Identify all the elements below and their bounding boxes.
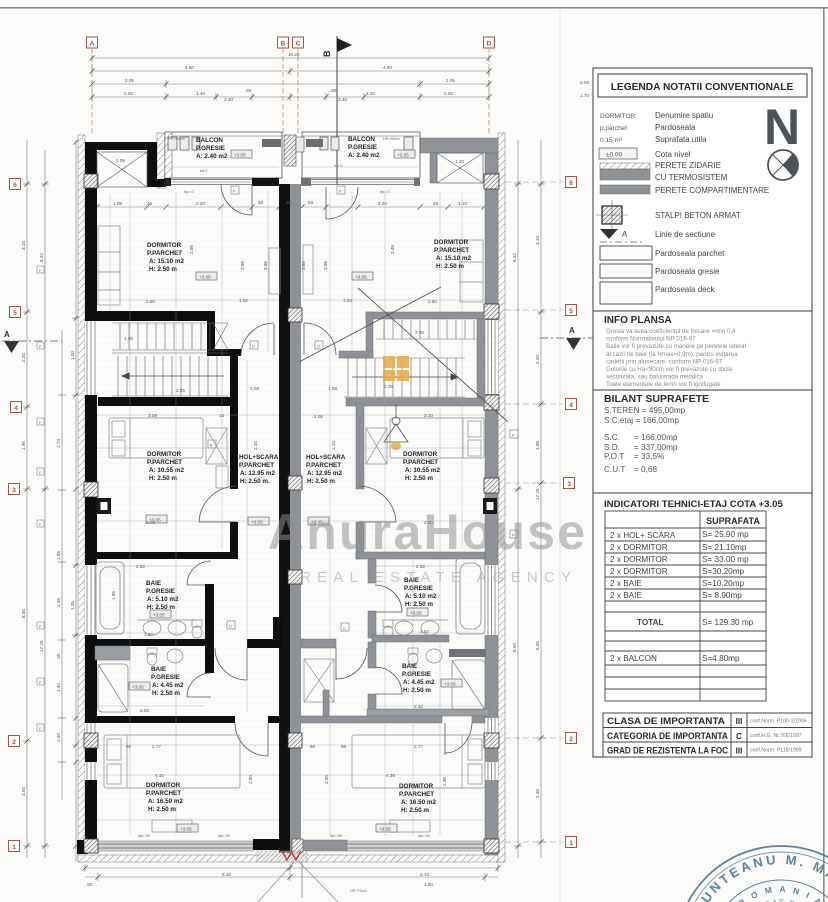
svg-text:DORMITOR: DORMITOR [147,242,182,249]
svg-text:1.70: 1.70 [580,93,589,98]
svg-text:hp= 90: hp= 90 [418,834,430,838]
svg-text:N: N [764,99,800,155]
svg-text:2 x BALCON: 2 x BALCON [610,654,657,663]
svg-text:PERETE ZIDARIE: PERETE ZIDARIE [655,161,721,170]
svg-text:1.05: 1.05 [56,551,61,560]
svg-text:P.GRESIE: P.GRESIE [402,671,431,678]
svg-text:6.32: 6.32 [39,253,44,262]
svg-text:P.GRESIE: P.GRESIE [348,144,377,151]
svg-text:DORMITOR: DORMITOR [399,783,434,790]
svg-text:2.20: 2.20 [21,353,26,362]
svg-text:1.95: 1.95 [21,441,26,450]
svg-text:1.40: 1.40 [56,733,61,742]
svg-text:1: 1 [569,840,573,847]
svg-text:3.85: 3.85 [301,261,306,270]
svg-text:2.40: 2.40 [224,97,233,102]
svg-text:S.D.: S.D. [604,443,620,452]
svg-text:Denumire spatiu: Denumire spatiu [655,111,713,120]
svg-text:Pardoseala parchet: Pardoseala parchet [655,249,725,258]
svg-text:2.45: 2.45 [390,245,395,254]
svg-text:CLASA DE IMPORTANTA: CLASA DE IMPORTANTA [607,716,725,726]
svg-text:A: A [90,41,95,48]
svg-text:58: 58 [308,200,314,205]
svg-text:2 x DORMITOR: 2 x DORMITOR [610,555,668,564]
svg-text:58: 58 [258,200,264,205]
svg-text:1.35: 1.35 [70,601,75,610]
svg-text:S=4.80mp: S=4.80mp [702,654,740,663]
svg-text:Pardoseala gresie: Pardoseala gresie [655,267,720,276]
svg-text:BILANT SUPRAFETE: BILANT SUPRAFETE [604,393,709,405]
svg-text:caderii prin alunecare, confor: caderii prin alunecare, conform NP 016-9… [606,358,723,365]
svg-text:HP=90cm: HP=90cm [168,137,185,141]
svg-text:2.80: 2.80 [428,299,437,304]
svg-text:3: 3 [12,487,16,494]
svg-text:H: 2.50 m: H: 2.50 m [307,478,335,485]
svg-text:1.95: 1.95 [535,441,540,450]
svg-text:P.GRESIE: P.GRESIE [151,674,180,681]
svg-text:B: B [281,41,286,48]
svg-text:hp= 90: hp= 90 [218,834,230,838]
svg-text:A: 12.95 m2: A: 12.95 m2 [240,470,275,477]
svg-text:A: 15.10 m2: A: 15.10 m2 [436,255,471,262]
svg-text:+3.05: +3.05 [444,682,456,687]
svg-text:HP=70cm: HP=70cm [350,889,367,893]
svg-text:S=30.20mp: S=30.20mp [702,567,745,576]
svg-text:III: III [736,717,743,726]
svg-text:2 x BAIE: 2 x BAIE [610,591,642,600]
svg-text:INDICATORI TEHNICI-ETAJ COTA +: INDICATORI TEHNICI-ETAJ COTA +3.05 [604,499,784,510]
svg-text:6.00: 6.00 [512,643,517,652]
svg-text:2.40: 2.40 [338,97,347,102]
svg-text:.50: .50 [86,882,93,887]
svg-text:3.10: 3.10 [21,241,26,250]
svg-text:GRAD DE REZISTENTA LA FOC: GRAD DE REZISTENTA LA FOC [607,746,728,756]
svg-text:Toate elementele de lemn vor f: Toate elementele de lemn vor fi ignifuga… [606,381,721,388]
svg-text:1.08: 1.08 [250,386,259,391]
svg-text:S= 33.00 mp: S= 33.00 mp [702,555,749,564]
svg-text:98: 98 [286,200,292,205]
svg-text:1.74: 1.74 [56,439,61,448]
svg-text:17.25: 17.25 [535,488,540,500]
svg-text:A: A [569,326,575,335]
svg-text:C: C [296,41,301,48]
svg-text:S.C.: S.C. [604,433,620,442]
svg-text:p.parchet: p.parchet [600,125,627,132]
svg-text:= 33,5%: = 33,5% [634,452,664,461]
svg-text:3.85: 3.85 [323,261,328,270]
svg-text:TOTAL: TOTAL [637,618,664,627]
svg-text:±0.00: ±0.00 [606,152,623,159]
svg-text:2.42: 2.42 [414,704,423,709]
svg-text:HOL+SCARA: HOL+SCARA [306,454,346,461]
svg-text:1.40: 1.40 [366,91,375,96]
svg-text:1.35: 1.35 [56,598,61,607]
svg-text:P.O.T: P.O.T [604,452,624,461]
svg-text:BAIE: BAIE [146,580,161,587]
svg-text:1.40: 1.40 [56,683,61,692]
svg-text:Pardoseala: Pardoseala [655,123,696,132]
svg-text:S= 129.30 mp: S= 129.30 mp [702,618,754,627]
svg-text:H: 2.50 m.: H: 2.50 m. [240,478,270,485]
svg-text:10.28: 10.28 [288,52,300,57]
svg-text:SUPRAFATA: SUPRAFATA [706,516,760,526]
svg-text:Cota nivel: Cota nivel [655,150,691,159]
svg-text:A: 10.55 m2: A: 10.55 m2 [149,467,184,474]
svg-text:S=10.20mp: S=10.20mp [702,579,745,588]
svg-text:LEGENDA NOTATII CONVENTIONALE: LEGENDA NOTATII CONVENTIONALE [611,82,794,93]
svg-text:U: U [252,345,255,349]
svg-text:U: U [317,345,320,349]
svg-text:17.25: 17.25 [39,640,44,652]
svg-text:A: 2.40 m2: A: 2.40 m2 [348,152,380,159]
svg-text:4: 4 [14,405,18,412]
svg-text:Golurile cu Ha<90cm vor fi pre: Golurile cu Ha<90cm vor fi prevazute cu … [606,366,733,373]
svg-text:6: 6 [569,180,573,187]
svg-text:2.06: 2.06 [580,80,589,85]
svg-text:2.05: 2.05 [125,78,134,83]
svg-text:C.U.T: C.U.T [604,465,625,474]
svg-text:BALCON: BALCON [348,136,375,143]
svg-text:conf.Norm. P118/1999: conf.Norm. P118/1999 [750,748,802,754]
svg-text:H: 2.50 m: H: 2.50 m [148,806,176,813]
svg-text:3.10: 3.10 [535,236,540,245]
svg-text:2 x DORMITOR: 2 x DORMITOR [610,543,668,552]
svg-text:AnuraHouse: AnuraHouse [268,504,587,560]
svg-text:2.05: 2.05 [124,91,133,96]
svg-text:.80: .80 [245,88,252,93]
svg-text:1.50: 1.50 [424,882,433,887]
svg-text:+3.05: +3.05 [397,153,409,158]
svg-text:securizata, sau balustrada met: securizata, sau balustrada metalica [606,374,704,381]
svg-text:conform Normativului NP 016-97: conform Normativului NP 016-97 [606,336,696,343]
svg-text:6.00: 6.00 [21,609,26,618]
svg-text:H: 2.50 m: H: 2.50 m [149,266,177,273]
svg-text:S.TEREN = 495,00mp: S.TEREN = 495,00mp [604,406,686,415]
svg-text:S= 25.90 mp: S= 25.90 mp [702,530,749,539]
svg-text:2.05: 2.05 [446,78,455,83]
svg-text:1.95: 1.95 [111,591,116,600]
svg-text:1: 1 [12,844,16,851]
svg-text:A: 2.40 m2: A: 2.40 m2 [196,153,228,160]
svg-text:PERETE COMPARTIMENTARE: PERETE COMPARTIMENTARE [655,186,769,195]
svg-text:2 x DORMITOR: 2 x DORMITOR [610,567,668,576]
svg-text:hp= 0: hp= 0 [184,190,194,194]
svg-text:1.10: 1.10 [455,159,464,164]
svg-text:1.52: 1.52 [239,298,248,303]
svg-text:2: 2 [569,736,573,743]
svg-text:H: 2.50 m: H: 2.50 m [436,263,464,270]
svg-text:2.79: 2.79 [146,520,155,525]
svg-text:2.38: 2.38 [442,777,447,786]
svg-text:1.08: 1.08 [328,386,337,391]
svg-text:A: A [622,230,628,239]
svg-text:5: 5 [569,308,573,315]
svg-text:HOL+SCARA: HOL+SCARA [239,454,279,461]
svg-text:6.48: 6.48 [222,872,231,877]
svg-text:0.15 m²: 0.15 m² [600,137,623,144]
svg-text:4: 4 [569,402,573,409]
svg-text:5: 5 [13,310,17,317]
svg-text:3: 3 [567,481,571,488]
svg-text:2.73: 2.73 [420,872,429,877]
svg-text:B: B [322,50,332,57]
svg-text:P.PARCHET: P.PARCHET [147,250,182,257]
svg-text:bd 0: bd 0 [200,169,207,173]
svg-text:2.50: 2.50 [21,787,26,796]
svg-text:Baile vor fi prevazute cu mane: Baile vor fi prevazute cu manere pe pere… [606,343,746,350]
svg-text:A: 5.10 m2: A: 5.10 m2 [147,596,179,603]
svg-text:S= 21.10mp: S= 21.10mp [702,543,747,552]
svg-text:Gresia va avea coeficientul de: Gresia va avea coeficientul de frecare =… [606,328,736,335]
svg-text:6.32: 6.32 [512,253,517,262]
svg-text:1.00: 1.00 [70,351,75,360]
svg-text:CU TERMOSISTEM: CU TERMOSISTEM [655,173,728,182]
svg-text:= 0,68: = 0,68 [634,465,657,474]
svg-text:2.95: 2.95 [189,245,194,254]
svg-text:Linie de sectiune: Linie de sectiune [655,230,716,239]
svg-text:P.PARCHET: P.PARCHET [399,791,434,798]
svg-text:Pardoseala deck: Pardoseala deck [655,285,716,294]
svg-text:2.20: 2.20 [535,355,540,364]
svg-text:2.00: 2.00 [324,775,329,784]
svg-text:III: III [736,747,743,756]
svg-text:3.85: 3.85 [240,261,245,270]
svg-text:HP=90cm: HP=90cm [383,137,400,141]
svg-text:2.80: 2.80 [146,299,155,304]
svg-text:h=l 0: h=l 0 [334,164,342,168]
svg-text:2.10: 2.10 [253,441,258,450]
svg-text:DORMITOR: DORMITOR [434,239,469,246]
svg-text:4.32: 4.32 [155,773,164,778]
svg-text:1.09: 1.09 [116,158,125,163]
svg-text:S= 8.90mp: S= 8.90mp [702,591,742,600]
svg-text:4.60: 4.60 [383,65,392,70]
svg-text:+3.05: +3.05 [234,153,246,158]
svg-text:.45: .45 [56,653,61,660]
svg-text:BAIE: BAIE [402,663,417,670]
svg-text:STALPI BETON ARMAT: STALPI BETON ARMAT [655,211,741,220]
svg-text:A: 5.10 m2: A: 5.10 m2 [405,593,437,600]
svg-text:2.05: 2.05 [444,91,453,96]
svg-text:1.40: 1.40 [196,91,205,96]
svg-text:2: 2 [12,739,16,746]
svg-text:= 166,00mp: = 166,00mp [634,433,678,442]
svg-text:DORMITOR: DORMITOR [146,782,181,789]
svg-text:S.C.etaj = 166,00mp: S.C.etaj = 166,00mp [604,416,679,425]
svg-text:2.25: 2.25 [176,388,185,393]
svg-text:conf.H.G. Nr.766/1997: conf.H.G. Nr.766/1997 [750,733,802,739]
svg-text:2.10: 2.10 [331,441,336,450]
svg-text:A: 12.95 m2: A: 12.95 m2 [307,470,342,477]
svg-text:hp= 90: hp= 90 [138,834,150,838]
svg-text:= 337,00mp: = 337,00mp [634,443,678,452]
svg-text:2 x HOL+ SCARA: 2 x HOL+ SCARA [610,531,676,540]
svg-text:P.PARCHET: P.PARCHET [147,459,182,466]
svg-text:INFO PLANSA: INFO PLANSA [604,315,672,326]
svg-text:P.PARCHET: P.PARCHET [403,459,438,466]
svg-text:4.60: 4.60 [185,65,194,70]
svg-text:1.53: 1.53 [343,298,352,303]
svg-text:2.80: 2.80 [248,775,253,784]
svg-text:2.42: 2.42 [144,632,153,637]
svg-text:2 x BAIE: 2 x BAIE [610,579,642,588]
svg-text:.80: .80 [330,88,337,93]
svg-text:DORMITOR: DORMITOR [600,113,636,120]
svg-text:C: C [736,732,742,741]
svg-text:4.38: 4.38 [386,773,395,778]
svg-text:+3.05: +3.05 [251,520,263,525]
svg-text:REAL ESTATE AGENCY: REAL ESTATE AGENCY [300,569,577,586]
svg-text:3.09: 3.09 [148,413,157,418]
svg-text:3.85: 3.85 [263,261,268,270]
svg-text:2.30: 2.30 [535,789,540,798]
svg-text:U: U [343,627,346,631]
svg-text:hp= 90: hp= 90 [330,834,342,838]
svg-text:Suprafata utila: Suprafata utila [655,135,707,144]
svg-text:A: 4.45 m2: A: 4.45 m2 [152,682,184,689]
svg-text:conf.Norm. P100-1/2006: conf.Norm. P100-1/2006 [750,719,807,725]
svg-text:D: D [487,41,492,48]
svg-text:P.GRESIE: P.GRESIE [404,585,433,592]
svg-text:CATEGORIA DE IMPORTANTA: CATEGORIA DE IMPORTANTA [607,731,728,741]
svg-text:al cazii de baie (la Hmax=0,9m: al cazii de baie (la Hmax=0,9m), pentru … [606,351,738,358]
svg-text:2.62: 2.62 [420,629,429,634]
svg-text:6: 6 [13,182,17,189]
svg-text:A: 10.55 m2: A: 10.55 m2 [405,467,440,474]
svg-text:6.00: 6.00 [535,641,540,650]
svg-text:A: A [4,330,10,339]
svg-text:BALCON: BALCON [196,137,223,144]
svg-text:H: 2.50 m: H: 2.50 m [403,687,431,694]
svg-text:P.GRESIE: P.GRESIE [196,145,225,152]
svg-text:3.10: 3.10 [424,413,433,418]
svg-text:H: 2.50 m: H: 2.50 m [401,807,429,814]
